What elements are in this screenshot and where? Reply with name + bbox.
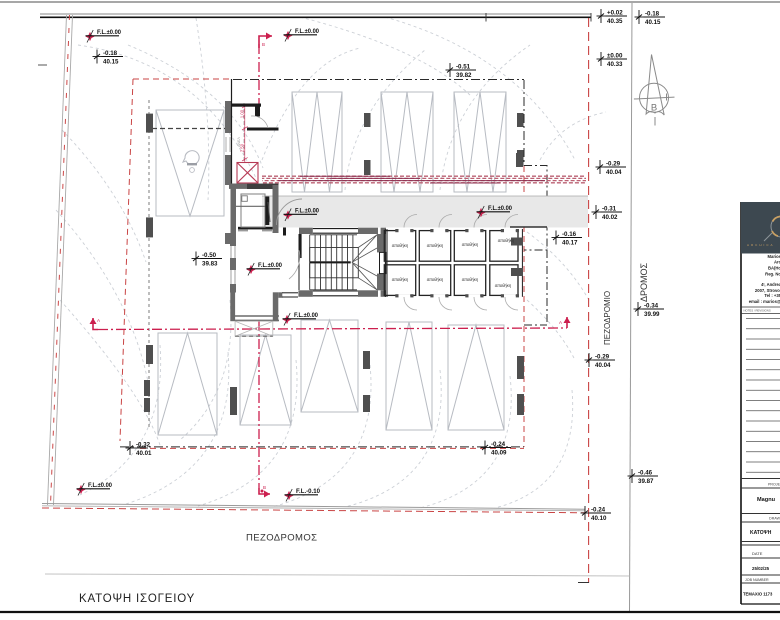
- svg-text:39.87: 39.87: [638, 478, 654, 485]
- svg-text:40.17: 40.17: [562, 239, 578, 246]
- svg-text:B: B: [263, 485, 266, 490]
- svg-text:A: A: [559, 320, 562, 325]
- svg-text:-0.50: -0.50: [202, 252, 217, 259]
- svg-text:JOB NUMBER: JOB NUMBER: [745, 578, 769, 582]
- svg-text:25/02/25: 25/02/25: [752, 566, 770, 571]
- svg-text:-0.51: -0.51: [456, 64, 471, 71]
- svg-text:-0.18: -0.18: [645, 11, 660, 18]
- svg-text:40.02: 40.02: [602, 214, 618, 221]
- svg-text:40.35: 40.35: [607, 18, 623, 25]
- svg-text:B: B: [651, 103, 657, 114]
- svg-text:39.82: 39.82: [456, 72, 472, 79]
- svg-text:40.04: 40.04: [606, 169, 622, 176]
- svg-text:-0.34: -0.34: [644, 303, 659, 310]
- svg-text:A: A: [97, 318, 100, 323]
- svg-text:ΠΕΖΟΔΡΟΜΙΟ: ΠΕΖΟΔΡΟΜΙΟ: [603, 291, 612, 345]
- svg-text:email : marios@: email : marios@: [749, 299, 780, 304]
- svg-text:DATE: DATE: [752, 551, 763, 556]
- svg-text:Magnu: Magnu: [757, 497, 776, 503]
- svg-text:αποθήκη: αποθήκη: [427, 243, 444, 248]
- svg-text:F.L.±0.00: F.L.±0.00: [488, 205, 512, 212]
- svg-text:ΤΕΜΑΧΙΟ 1173: ΤΕΜΑΧΙΟ 1173: [743, 592, 773, 597]
- svg-text:ΔΡΟΜΟΣ: ΔΡΟΜΟΣ: [639, 262, 649, 302]
- svg-text:F.L.±0.00: F.L.±0.00: [294, 312, 318, 319]
- svg-text:39.99: 39.99: [644, 311, 660, 318]
- svg-text:Reg. No: Reg. No: [765, 271, 780, 276]
- svg-text:F.L.-0.10: F.L.-0.10: [296, 488, 320, 495]
- svg-text:40.33: 40.33: [607, 61, 623, 68]
- svg-text:-0.32: -0.32: [136, 442, 151, 449]
- svg-text:Marios: Marios: [768, 254, 780, 259]
- svg-text:40.15: 40.15: [103, 58, 119, 65]
- svg-text:±0.00: ±0.00: [607, 53, 623, 60]
- svg-text:ΑΝΕΛ: ΑΝΕΛ: [237, 137, 241, 147]
- svg-text:-0.46: -0.46: [638, 470, 653, 477]
- svg-text:NOTES / REVISIONS: NOTES / REVISIONS: [744, 309, 771, 313]
- svg-text:F.L.±0.00: F.L.±0.00: [295, 208, 319, 215]
- svg-text:-0.24: -0.24: [491, 441, 506, 448]
- svg-text:F.L.±0.00: F.L.±0.00: [88, 482, 112, 489]
- svg-text:B: B: [262, 42, 265, 47]
- svg-text:-0.16: -0.16: [562, 231, 577, 238]
- svg-text:-0.29: -0.29: [595, 354, 610, 361]
- svg-text:39.83: 39.83: [202, 260, 218, 267]
- svg-text:F.L.±0.00: F.L.±0.00: [295, 28, 319, 35]
- svg-text:40.01: 40.01: [136, 450, 152, 457]
- svg-text:BA(Ho: BA(Ho: [768, 266, 780, 271]
- svg-text:ARCHICA: ARCHICA: [747, 243, 775, 247]
- svg-text:-0.31: -0.31: [602, 206, 617, 213]
- svg-text:PROJE: PROJE: [768, 483, 780, 487]
- svg-text:1.00: 1.00: [240, 109, 245, 118]
- svg-text:ΚΑΤΟΨΗ ΙΣΟΓΕΙΟΥ: ΚΑΤΟΨΗ ΙΣΟΓΕΙΟΥ: [79, 593, 195, 605]
- svg-text:40.04: 40.04: [595, 362, 611, 369]
- svg-text:αποθήκη: αποθήκη: [462, 242, 479, 247]
- svg-text:αποθήκη: αποθήκη: [392, 277, 409, 282]
- svg-text:-0.29: -0.29: [606, 161, 621, 168]
- svg-text:40.09: 40.09: [491, 449, 507, 456]
- svg-text:40.15: 40.15: [645, 19, 661, 26]
- svg-text:DRAW: DRAW: [769, 517, 780, 521]
- svg-text:F.L.±0.00: F.L.±0.00: [258, 262, 282, 269]
- svg-text:-0.18: -0.18: [103, 50, 118, 57]
- svg-text:αποθήκη: αποθήκη: [462, 277, 479, 282]
- svg-text:40.10: 40.10: [591, 515, 607, 522]
- svg-text:ΚΑΤΟΨΗ: ΚΑΤΟΨΗ: [750, 530, 772, 536]
- svg-text:αποθήκη: αποθήκη: [392, 243, 409, 248]
- svg-text:αποθήκη: αποθήκη: [427, 277, 444, 282]
- svg-text:-0.24: -0.24: [591, 507, 606, 514]
- svg-text:F.L.±0.00: F.L.±0.00: [97, 29, 121, 36]
- svg-text:+0.02: +0.02: [607, 10, 623, 17]
- svg-text:αποθήκη: αποθήκη: [495, 283, 512, 288]
- svg-text:αποθήκη: αποθήκη: [498, 238, 515, 243]
- svg-text:Arc: Arc: [774, 260, 780, 265]
- svg-text:Tel : +35: Tel : +35: [764, 293, 780, 298]
- svg-text:4ᵗ, Andrea: 4ᵗ, Andrea: [761, 282, 780, 287]
- svg-text:ΠΕΖΟΔΡΟΜΟΣ: ΠΕΖΟΔΡΟΜΟΣ: [246, 533, 317, 544]
